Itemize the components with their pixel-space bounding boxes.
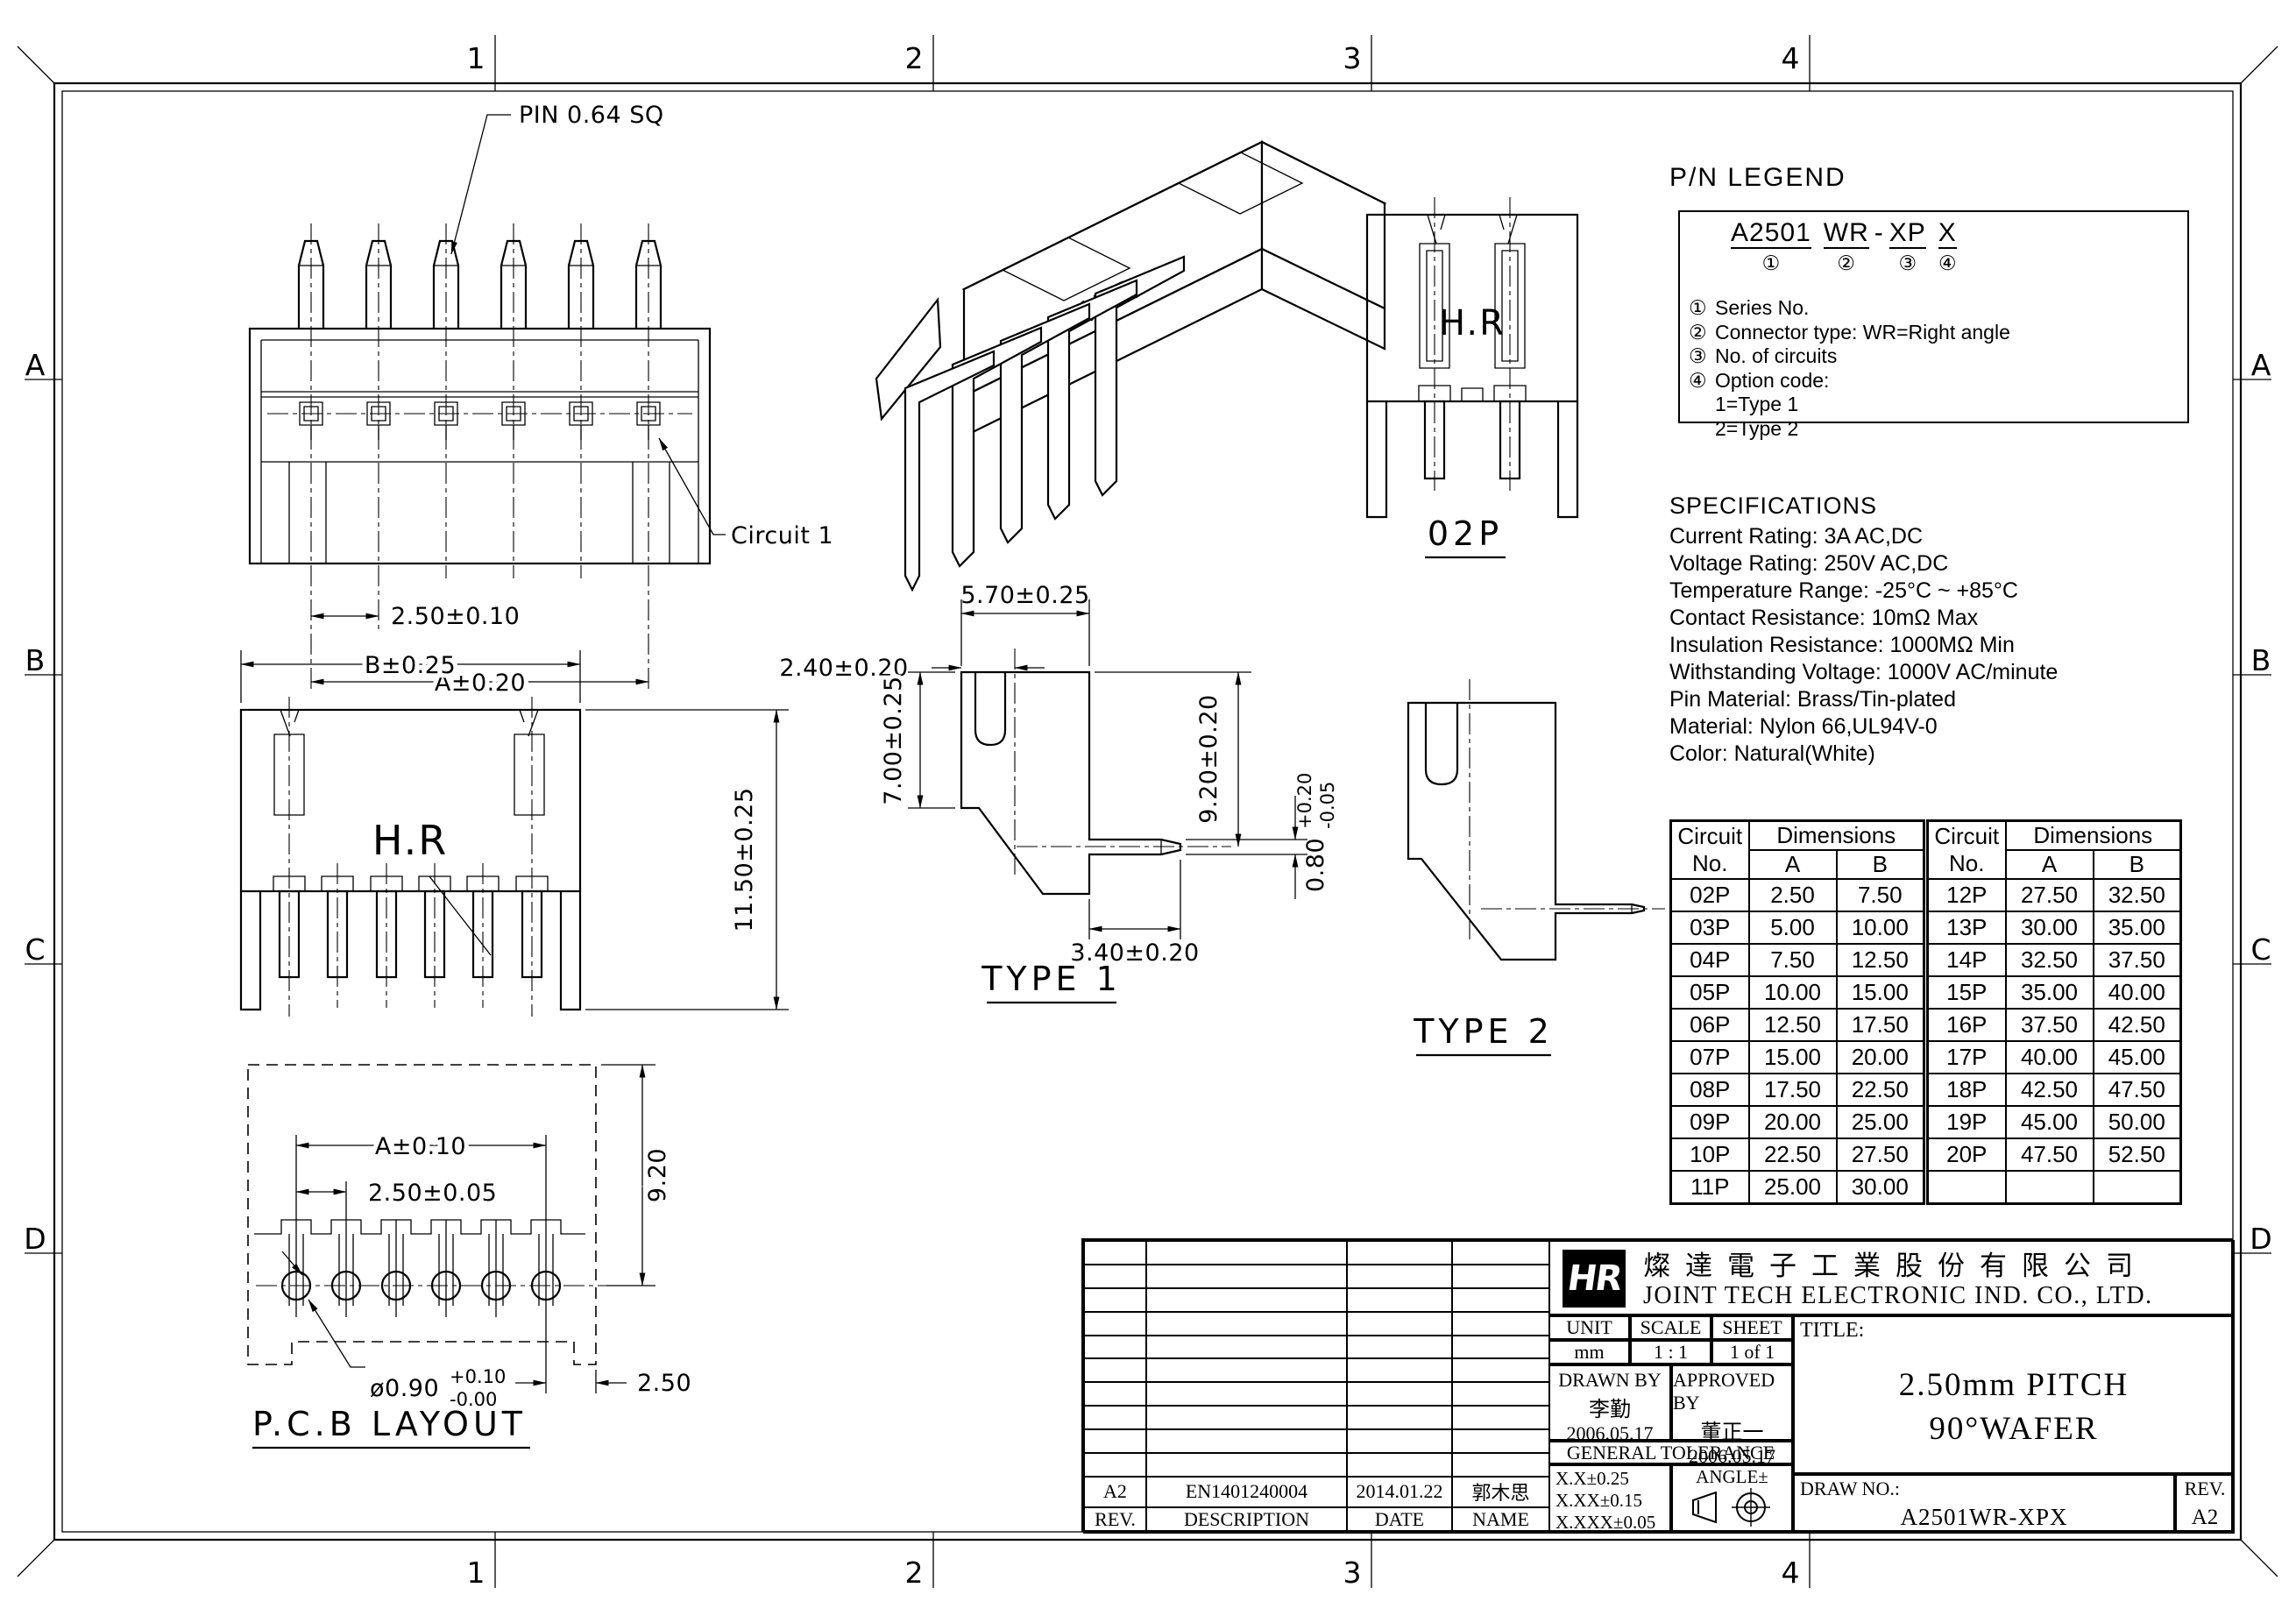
table-cell: [2006, 1171, 2094, 1204]
col-header: No.: [1949, 850, 1984, 876]
table-cell: 22.50: [1749, 1138, 1837, 1171]
table-cell: 15.00: [1837, 976, 1924, 1009]
table-cell: 10.00: [1837, 911, 1924, 944]
approved-by-cell: APPROVED BY 董正一 2006.05.17: [1671, 1364, 1793, 1441]
view-front: H.R B±0.25 11.50±0.25: [241, 650, 789, 1017]
drawn-by-cell: DRAWN BY 李勤 2006.05.17: [1548, 1364, 1671, 1441]
part-segment: X: [1938, 219, 1957, 249]
part-segment: XP: [1889, 219, 1926, 249]
part-marker: ①: [1762, 252, 1781, 275]
table-cell: 08P: [1671, 1074, 1749, 1106]
table-cell: 10P: [1671, 1138, 1749, 1171]
table-cell: 40.00: [2006, 1041, 2094, 1074]
table-cell: 05P: [1671, 976, 1749, 1009]
tolerance-values: X.X±0.25 X.XX±0.15 X.XXX±0.05: [1548, 1464, 1671, 1534]
view-type1: 5.70±0.25 2.40±0.20 7.00±0.25 9.20±0.20 …: [779, 582, 1338, 1003]
table-row: 15P35.0040.00: [1928, 976, 2181, 1009]
table-cell: 17.50: [1749, 1074, 1837, 1106]
zone-col-label: 1: [467, 1556, 485, 1590]
scale-label: SCALE: [1630, 1315, 1711, 1340]
col-header: Circuit: [1934, 823, 1999, 849]
zone-col-label: 4: [1782, 41, 1800, 75]
table-cell: 52.50: [2094, 1138, 2181, 1171]
zone-col-label: 3: [1343, 41, 1362, 75]
table-cell: 11P: [1671, 1171, 1749, 1204]
specifications: SPECIFICATIONS Current Rating: 3A AC,DC …: [1669, 493, 2248, 768]
part-number: A2501① WR② - XP③ X④: [1731, 219, 1957, 275]
table-cell: 30.00: [1837, 1171, 1924, 1204]
table-cell: 30.00: [2006, 911, 2094, 944]
dim-height: 9.20: [644, 1148, 671, 1202]
dim-pin-tol-minus: -0.05: [1317, 782, 1338, 829]
circuit-table-left: CircuitNo. Dimensions A B 02P2.507.5003P…: [1669, 819, 1925, 1205]
table-cell: 40.00: [2094, 976, 2181, 1009]
sheet-value: 1 of 1: [1711, 1340, 1793, 1364]
dim-hole-tol-plus: +0.10: [450, 1366, 506, 1387]
dim-height: 11.50±0.25: [731, 787, 758, 932]
spec-line: Pin Material: Brass/Tin-plated: [1669, 686, 2248, 713]
view-top-pins: 2.50±0.10 A±0.20 PIN 0.64 SQ Circuit 1: [250, 102, 833, 697]
table-cell: 19P: [1928, 1106, 2006, 1138]
dim-left-height: 7.00±0.25: [880, 676, 907, 804]
dim-pin-tol-plus: +0.20: [1294, 773, 1315, 829]
table-cell: 27.50: [1837, 1138, 1924, 1171]
table-cell: 16P: [1928, 1009, 2006, 1041]
table-cell: 27.50: [2006, 879, 2094, 911]
col-header: Circuit: [1677, 823, 1742, 849]
dim-overall: A±0.10: [375, 1133, 466, 1160]
table-cell: 15.00: [1749, 1041, 1837, 1074]
table-cell: 09P: [1671, 1106, 1749, 1138]
table-cell: 32.50: [2094, 879, 2181, 911]
spec-line: Contact Resistance: 10mΩ Max: [1669, 605, 2248, 632]
zone-row-label: D: [2250, 1222, 2271, 1256]
table-row: 11P25.0030.00: [1671, 1171, 1924, 1204]
zone-row-label: D: [24, 1222, 46, 1256]
title-label: TITLE:: [1800, 1319, 1864, 1343]
view-isometric: H.R: [876, 142, 1385, 590]
zone-col-label: 4: [1782, 1556, 1800, 1590]
rev-id: A2: [1084, 1477, 1146, 1507]
part-segment: -: [1874, 219, 1884, 247]
part-marker: ③: [1898, 252, 1917, 275]
table-cell: 12.50: [1837, 944, 1924, 976]
part-segment: WR: [1824, 219, 1869, 249]
approved-by-label: APPROVED BY: [1673, 1369, 1791, 1414]
revision-row: A2 EN1401240004 2014.01.22 郭木思: [1084, 1477, 1549, 1507]
legend-item: ②Connector type: WR=Right angle: [1689, 321, 2010, 345]
dim-width: B±0.25: [365, 652, 456, 679]
legend-item: ①Series No.: [1689, 296, 2010, 321]
view-label-type2: TYPE 2: [1413, 1012, 1554, 1051]
table-cell: 20P: [1928, 1138, 2006, 1171]
view-02p: H.R 02P: [1367, 197, 1577, 557]
table-row: 12P27.5032.50: [1928, 879, 2181, 911]
pn-legend-box: A2501① WR② - XP③ X④ ①Series No. ②Connect…: [1678, 210, 2189, 423]
col-header: B: [2129, 851, 2144, 877]
table-row: 19P45.0050.00: [1928, 1106, 2181, 1138]
specifications-title: SPECIFICATIONS: [1669, 493, 2248, 520]
title-block: A2 EN1401240004 2014.01.22 郭木思 REV. DESC…: [1081, 1238, 2233, 1532]
table-cell: 7.50: [1837, 879, 1924, 911]
col-header: A: [2042, 851, 2057, 877]
legend-item: ③No. of circuits: [1689, 344, 2010, 369]
dim-pin-thickness: 0.80: [1302, 838, 1329, 892]
tolerance-line: X.XXX±0.05: [1555, 1512, 1669, 1534]
rev-header: DATE: [1347, 1507, 1452, 1533]
zone-row-label: A: [2251, 348, 2271, 382]
table-row: 02P2.507.50: [1671, 879, 1924, 911]
company-name-en: JOINT TECH ELECTRONIC IND. CO., LTD.: [1643, 1282, 2153, 1310]
table-row: 05P10.0015.00: [1671, 976, 1924, 1009]
spec-line: Voltage Rating: 250V AC,DC: [1669, 550, 2248, 578]
table-row: 08P17.5022.50: [1671, 1074, 1924, 1106]
dim-top-width: 5.70±0.25: [960, 582, 1089, 609]
table-cell: 2.50: [1749, 879, 1837, 911]
company-name-cn: 燦達電子工業股份有限公司: [1643, 1244, 2148, 1283]
rev-header: REV.: [1084, 1507, 1146, 1533]
table-row: 04P7.5012.50: [1671, 944, 1924, 976]
dim-hole: ø0.90: [370, 1375, 439, 1402]
dim-right-height: 9.20±0.20: [1195, 694, 1222, 823]
drawing-title-line2: 90°WAFER: [1795, 1410, 2233, 1448]
part-marker: ②: [1837, 252, 1855, 275]
table-row: 14P32.5037.50: [1928, 944, 2181, 976]
table-row: 07P15.0020.00: [1671, 1041, 1924, 1074]
pn-legend-title: P/N LEGEND: [1669, 163, 1846, 193]
spec-line: Color: Natural(White): [1669, 741, 2248, 768]
view-pcb-layout: A±0.10 2.50±0.05 9.20 ø0.90 +0.10 -0.00 …: [248, 1065, 691, 1448]
dim-pitch: 2.50±0.10: [391, 603, 520, 630]
zone-col-label: 2: [905, 1556, 924, 1590]
legend-item: 1=Type 1: [1689, 393, 2010, 417]
spec-line: Insulation Resistance: 1000MΩ Min: [1669, 632, 2248, 659]
table-cell: 42.50: [2006, 1074, 2094, 1106]
table-cell: 12.50: [1749, 1009, 1837, 1041]
dim-pitch: 2.50±0.05: [368, 1180, 497, 1207]
tolerance-line: X.X±0.25: [1555, 1468, 1669, 1490]
table-row: 17P40.0045.00: [1928, 1041, 2181, 1074]
spec-line: Temperature Range: -25°C ~ +85°C: [1669, 578, 2248, 605]
rev-cell: REV. A2: [2175, 1474, 2235, 1534]
circuit1-callout: Circuit 1: [731, 522, 833, 549]
view-label-type1: TYPE 1: [981, 960, 1122, 998]
rev-header: NAME: [1452, 1507, 1549, 1533]
table-cell: 17P: [1928, 1041, 2006, 1074]
revision-table: A2 EN1401240004 2014.01.22 郭木思 REV. DESC…: [1083, 1240, 1550, 1534]
company-logo: HR: [1563, 1250, 1626, 1308]
circuit-table-right: CircuitNo. Dimensions A B 12P27.5032.501…: [1926, 819, 2182, 1205]
table-cell: 22.50: [1837, 1074, 1924, 1106]
rev-value: A2: [2177, 1506, 2233, 1530]
view-label-02p: 02P: [1428, 514, 1503, 553]
rev-label: REV.: [2177, 1478, 2233, 1500]
legend-item: ④Option code:: [1689, 369, 2010, 393]
table-cell: 47.50: [2006, 1138, 2094, 1171]
table-row: 20P47.5052.50: [1928, 1138, 2181, 1171]
drawing-title-line1: 2.50mm PITCH: [1795, 1366, 2233, 1404]
zone-col-label: 1: [467, 41, 485, 75]
scale-value: 1 : 1: [1630, 1340, 1711, 1364]
rev-header: DESCRIPTION: [1146, 1507, 1347, 1533]
table-cell: 25.00: [1749, 1171, 1837, 1204]
table-cell: 04P: [1671, 944, 1749, 976]
table-row: 18P42.5047.50: [1928, 1074, 2181, 1106]
angle-tolerance-cell: ANGLE±: [1671, 1464, 1793, 1534]
col-header: No.: [1692, 850, 1727, 876]
part-marker: ④: [1938, 252, 1957, 275]
table-row: 06P12.5017.50: [1671, 1009, 1924, 1041]
zone-row-label: C: [25, 932, 45, 967]
sheet-label: SHEET: [1711, 1315, 1793, 1340]
spec-line: Withstanding Voltage: 1000V AC/minute: [1669, 659, 2248, 686]
table-cell: 17.50: [1837, 1009, 1924, 1041]
unit-value: mm: [1548, 1340, 1630, 1364]
table-cell: [2094, 1171, 2181, 1204]
table-cell: 37.50: [2006, 1009, 2094, 1041]
table-cell: 20.00: [1749, 1106, 1837, 1138]
unit-label: UNIT: [1548, 1315, 1630, 1340]
table-cell: 20.00: [1837, 1041, 1924, 1074]
angle-label: ANGLE±: [1673, 1466, 1791, 1488]
general-tolerance-label: GENERAL TOLERANCE: [1548, 1441, 1793, 1464]
pn-legend-items: ①Series No. ②Connector type: WR=Right an…: [1689, 296, 2010, 441]
view-label-pcb: P.C.B LAYOUT: [252, 1405, 527, 1443]
hr-marking: H.R: [372, 817, 448, 864]
table-cell: 14P: [1928, 944, 2006, 976]
table-cell: 03P: [1671, 911, 1749, 944]
table-cell: 15P: [1928, 976, 2006, 1009]
table-row: 10P22.5027.50: [1671, 1138, 1924, 1171]
col-header: B: [1873, 851, 1888, 877]
title-area: TITLE: 2.50mm PITCH 90°WAFER: [1793, 1315, 2235, 1474]
rev-name: 郭木思: [1452, 1477, 1549, 1507]
part-segment: A2501: [1731, 219, 1811, 249]
rev-description: EN1401240004: [1146, 1477, 1347, 1507]
drawn-by-label: DRAWN BY: [1558, 1369, 1661, 1392]
draw-no-label: DRAW NO.:: [1800, 1478, 1900, 1500]
table-row: [1928, 1171, 2181, 1204]
table-cell: 18P: [1928, 1074, 2006, 1106]
zone-col-label: 3: [1343, 1556, 1362, 1590]
zone-row-label: A: [25, 348, 46, 382]
drawing-sheet: 1 2 3 4 1 2 3 4 A B C D A B C D 2.50±0.1…: [0, 0, 2296, 1623]
table-cell: 25.00: [1837, 1106, 1924, 1138]
spec-line: Current Rating: 3A AC,DC: [1669, 523, 2248, 550]
projection-symbol-icon: [1684, 1488, 1781, 1527]
hr-marking: H.R: [1439, 303, 1506, 344]
view-type2: TYPE 2: [1408, 679, 1665, 1055]
pin-callout: PIN 0.64 SQ: [519, 102, 664, 129]
table-cell: 32.50: [2006, 944, 2094, 976]
zone-col-label: 2: [905, 41, 924, 75]
table-cell: 07P: [1671, 1041, 1749, 1074]
table-cell: 50.00: [2094, 1106, 2181, 1138]
table-cell: 37.50: [2094, 944, 2181, 976]
table-cell: 45.00: [2006, 1106, 2094, 1138]
dim-edge: 2.50: [637, 1370, 691, 1397]
company-band: HR 燦達電子工業股份有限公司 JOINT TECH ELECTRONIC IN…: [1548, 1240, 2235, 1315]
table-cell: 47.50: [2094, 1074, 2181, 1106]
table-row: 13P30.0035.00: [1928, 911, 2181, 944]
table-cell: 35.00: [2094, 911, 2181, 944]
tolerance-line: X.XX±0.15: [1555, 1490, 1669, 1512]
zone-row-label: B: [2251, 643, 2271, 677]
table-row: 16P37.5042.50: [1928, 1009, 2181, 1041]
table-cell: 42.50: [2094, 1009, 2181, 1041]
table-cell: 10.00: [1749, 976, 1837, 1009]
table-cell: 02P: [1671, 879, 1749, 911]
draw-no-cell: DRAW NO.: A2501WR-XPX: [1793, 1474, 2175, 1534]
table-cell: 06P: [1671, 1009, 1749, 1041]
table-cell: 12P: [1928, 879, 2006, 911]
legend-item: 2=Type 2: [1689, 417, 2010, 442]
table-cell: 45.00: [2094, 1041, 2181, 1074]
table-cell: 35.00: [2006, 976, 2094, 1009]
table-cell: 13P: [1928, 911, 2006, 944]
zone-row-label: C: [2250, 932, 2271, 967]
col-header: A: [1785, 851, 1800, 877]
table-row: 03P5.0010.00: [1671, 911, 1924, 944]
table-cell: [1928, 1171, 2006, 1204]
table-cell: 7.50: [1749, 944, 1837, 976]
table-cell: 5.00: [1749, 911, 1837, 944]
col-header: Dimensions: [2033, 822, 2152, 848]
revision-header-row: REV. DESCRIPTION DATE NAME: [1084, 1507, 1549, 1533]
spec-line: Material: Nylon 66,UL94V-0: [1669, 713, 2248, 741]
zone-row-label: B: [25, 643, 46, 677]
drawn-by-name: 李勤: [1589, 1392, 1631, 1422]
rev-date: 2014.01.22: [1347, 1477, 1452, 1507]
table-row: 09P20.0025.00: [1671, 1106, 1924, 1138]
draw-no-value: A2501WR-XPX: [1795, 1504, 2173, 1531]
col-header: Dimensions: [1776, 822, 1896, 848]
